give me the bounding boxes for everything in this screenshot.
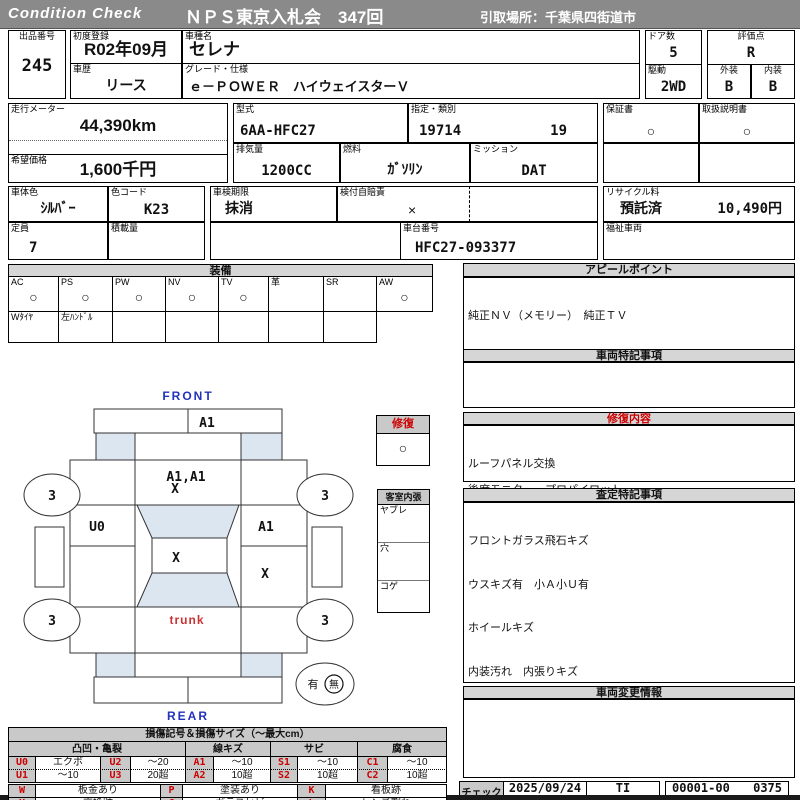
fuel-cell: 燃料 ｶﾞｿﾘﾝ: [340, 143, 470, 183]
assessment-body: フロントガラス飛石キズ ウスキズ有 小Ａ小Ｕ有 ホイールキズ 内装汚れ 内張りキ…: [463, 502, 795, 683]
price-value: 1,600千円: [9, 155, 227, 180]
inspection-cell: 車検期限 抹消: [210, 186, 337, 222]
legend-desc-s2: 10超: [297, 769, 358, 783]
appeal-line: 純正ＮＶ（メモリー） 純正ＴＶ: [468, 309, 790, 324]
history-label: 車歴: [73, 64, 91, 75]
exterior-grade-value: B: [708, 79, 750, 95]
color-code-value: K23: [109, 202, 204, 218]
fuel-value: ｶﾞｿﾘﾝ: [341, 159, 469, 179]
cabin-trim-box: 客室内張 ヤブレ 穴 コゲ: [377, 489, 430, 613]
equip-extra-5-cell: [218, 311, 269, 343]
chassis-cell: 車台番号 HFC27-093377: [400, 222, 598, 260]
equip-ps-cell: PS○: [58, 276, 113, 312]
roof-replace-mark: X: [172, 551, 180, 566]
insurance-label: 検付自賠責: [340, 187, 385, 198]
brand-logo: Condition Check: [8, 5, 142, 22]
cabin-trim-row-tear: ヤブレ: [378, 504, 429, 543]
equip-aw-cell: AW○: [376, 276, 433, 312]
manual-cell: 取扱説明書 ○: [699, 103, 795, 143]
cabin-trim-header: 客室内張: [378, 490, 429, 505]
model-code-label: 型式: [236, 104, 254, 115]
equip-extra-2-cell: 左ﾊﾝﾄﾞﾙ: [58, 311, 113, 343]
assessment-line: フロントガラス飛石キズ: [468, 534, 790, 549]
recycle-amount-value: 10,490円: [717, 198, 782, 218]
legend-group-corrosion: 腐食: [357, 741, 447, 757]
legend-desc-u0: エクボ: [35, 756, 101, 770]
lot-number-cell: 出品番号 245: [8, 30, 66, 99]
equip-extra-7-cell: [323, 311, 377, 343]
equip-ac-mark: ○: [9, 289, 58, 305]
front-direction-label: FRONT: [162, 389, 213, 403]
repair-flag-header: 修復: [377, 416, 429, 434]
chassis-label: 車台番号: [403, 223, 439, 234]
color-code-cell: 色コード K23: [108, 186, 205, 222]
equip-ps-mark: ○: [59, 289, 112, 305]
equip-sr-label: SR: [326, 277, 339, 288]
rear-center-panel: [135, 653, 241, 677]
assessment-header: 査定特記事項: [463, 488, 795, 502]
doors-value: 5: [646, 45, 701, 61]
legend-desc-a1: 〜10: [213, 756, 271, 770]
type-number-value: 19714: [419, 123, 461, 139]
type-class-cell: 指定・類別 19714 19: [408, 103, 598, 143]
color-code-label: 色コード: [111, 187, 147, 198]
cabin-trim-row-hole: 穴: [378, 542, 429, 581]
windshield-glass: [137, 505, 239, 538]
hood-replace-mark: X: [171, 482, 179, 497]
equip-extra-1-cell: Wﾀｲﾔ: [8, 311, 59, 343]
trunk-label: trunk: [170, 613, 205, 627]
type-class-label: 指定・類別: [411, 104, 456, 115]
transmission-label: ミッション: [473, 144, 518, 155]
legend-code-k: K: [297, 784, 326, 798]
interior-grade-cell: 内装 B: [751, 64, 795, 99]
warranty-empty-cell: [603, 143, 699, 183]
drive-label: 駆動: [648, 65, 666, 76]
equip-extra-2-label: 左ﾊﾝﾄﾞﾙ: [61, 312, 93, 323]
fuel-label: 燃料: [343, 144, 361, 155]
hood-front-panel: [135, 433, 241, 460]
legend-desc-s1: 〜10: [297, 756, 358, 770]
legend-desc-c2: 10超: [387, 769, 447, 783]
exterior-grade-cell: 外装 B: [707, 64, 751, 99]
displacement-label: 排気量: [236, 144, 263, 155]
assessment-line: ウスキズ有 小Ａ小Ｕ有: [468, 578, 790, 593]
legend-desc-a2: 10超: [213, 769, 271, 783]
legend-desc-c1: 〜10: [387, 756, 447, 770]
warranty-label: 保証書: [606, 104, 633, 115]
equip-tv-label: TV: [221, 277, 233, 288]
equip-aw-label: AW: [379, 277, 393, 288]
manual-empty-cell: [699, 143, 795, 183]
legend-group-dent: 凸凹・亀裂: [8, 741, 186, 757]
equip-ps-label: PS: [61, 277, 73, 288]
odometer-cell: 走行メーター 44,390km 希望価格 1,600千円: [8, 103, 228, 183]
history-cell: 車歴 リース: [70, 63, 182, 99]
legend-code-u1: U1: [8, 769, 36, 783]
rear-left-corner-glass: [96, 653, 135, 677]
equip-extra-4-cell: [165, 311, 219, 343]
legend-code-u2: U2: [100, 756, 131, 770]
welfare-cell: 福祉車両: [603, 222, 795, 260]
auction-condition-sheet: Condition Check ＮＰＳ東京入札会 347回 引取場所：千葉県四街…: [0, 0, 800, 800]
header-bar: Condition Check ＮＰＳ東京入札会 347回 引取場所：千葉県四街…: [0, 0, 800, 29]
repair-flag-mark: ○: [377, 440, 429, 456]
insurance-empty-cell: [470, 186, 598, 222]
legend-code-u3: U3: [100, 769, 131, 783]
equip-pw-cell: PW○: [112, 276, 166, 312]
legend-desc-u1: 〜10: [35, 769, 101, 783]
price-subcell: 希望価格 1,600千円: [9, 154, 227, 182]
inspection-value: 抹消: [211, 198, 336, 218]
rear-right-corner-glass: [241, 653, 282, 677]
legend-code-p: P: [160, 784, 183, 798]
legend-group-rust: サビ: [270, 741, 358, 757]
grade-cell: グレード・仕様 ｅ－ＰＯＷＥＲ ハイウェイスターＶ: [182, 63, 640, 99]
chassis-empty-cell: [210, 222, 401, 260]
equip-extra-3-cell: [112, 311, 166, 343]
recycle-fee-cell: リサイクル料 預託済 10,490円: [603, 186, 795, 222]
score-value: R: [708, 45, 794, 61]
equip-ac-cell: AC○: [8, 276, 59, 312]
legend-desc-u3: 20超: [130, 769, 186, 783]
front-left-corner-glass: [96, 433, 135, 460]
vehicle-notes-body: [463, 362, 795, 408]
front-bumper-damage-mark: A1: [199, 416, 215, 431]
repair-info-line: ルーフパネル交換: [468, 457, 790, 472]
inspection-label: 車検期限: [213, 187, 249, 198]
interior-grade-label: 内装: [752, 65, 794, 76]
legend-group-scratch: 線キズ: [185, 741, 271, 757]
equip-leather-cell: 革: [268, 276, 324, 312]
warranty-mark: ○: [604, 123, 698, 139]
insurance-cell: 検付自賠責 ×: [337, 186, 470, 222]
load-cell: 積載量: [108, 222, 205, 260]
front-right-tire-depth: 3: [321, 489, 329, 504]
appeal-body: 純正ＮＶ（メモリー） 純正ＴＶ インテリジェントキー（2） 左右オートスライドド…: [463, 277, 795, 352]
rear-left-tire-depth: 3: [48, 614, 56, 629]
equip-pw-mark: ○: [113, 289, 165, 305]
equip-nv-cell: NV○: [165, 276, 219, 312]
change-info-body: [463, 699, 795, 778]
pickup-location: 引取場所：千葉県四街道市: [480, 7, 636, 26]
roof-panel: [152, 538, 227, 573]
odometer-divider: [9, 140, 227, 141]
legend-code-s1: S1: [270, 756, 298, 770]
displacement-value: 1200CC: [234, 163, 339, 179]
chassis-value: HFC27-093377: [401, 240, 597, 256]
body-color-cell: 車体色 ｼﾙﾊﾞｰ: [8, 186, 108, 222]
displacement-cell: 排気量 1200CC: [233, 143, 340, 183]
assessment-line: 内装汚れ 内張りキズ: [468, 665, 790, 680]
welfare-label: 福祉車両: [606, 223, 642, 234]
left-mirror-panel: [35, 527, 64, 587]
score-cell: 評価点 R: [707, 30, 795, 65]
legend-code-a2: A2: [185, 769, 214, 783]
first-registration-value: R02年09月: [71, 35, 181, 60]
drive-value: 2WD: [646, 79, 701, 95]
left-door-damage-mark: U0: [89, 520, 105, 535]
manual-mark: ○: [700, 123, 794, 139]
equip-tv-cell: TV○: [218, 276, 269, 312]
body-color-value: ｼﾙﾊﾞｰ: [9, 198, 107, 218]
spare-none-label: 無: [329, 678, 339, 691]
right-mirror-panel: [312, 527, 342, 587]
repair-info-body: ルーフパネル交換: [463, 425, 795, 482]
grade-value: ｅ－ＰＯＷＥＲ ハイウェイスターＶ: [183, 76, 639, 95]
legend-desc-k: 看板跡: [325, 784, 447, 798]
right-rear-replace-mark: X: [261, 567, 269, 582]
model-name-value: セレナ: [183, 35, 639, 60]
legend-desc-w: 板金あり: [35, 784, 161, 798]
doors-cell: ドア数 5: [645, 30, 702, 65]
exterior-grade-label: 外装: [708, 65, 750, 76]
equip-nv-mark: ○: [166, 289, 218, 305]
equip-leather-label: 革: [271, 277, 280, 288]
capacity-cell: 定員 7: [8, 222, 108, 260]
repair-flag-box: 修復 ○: [376, 415, 430, 466]
body-color-label: 車体色: [11, 187, 38, 198]
recycle-fee-label: リサイクル料: [606, 187, 660, 198]
transmission-cell: ミッション DAT: [470, 143, 598, 183]
front-right-corner-glass: [241, 433, 282, 460]
equip-sr-cell: SR: [323, 276, 377, 312]
class-number-value: 19: [550, 123, 567, 139]
equip-tv-mark: ○: [219, 289, 268, 305]
legend-title: 損傷記号＆損傷サイズ（〜最大cm）: [8, 727, 447, 742]
spare-present-label: 有: [308, 677, 319, 691]
odometer-label: 走行メーター: [11, 104, 65, 115]
rear-window-glass: [137, 573, 239, 607]
model-code-value: 6AA-HFC27: [234, 123, 407, 139]
vehicle-notes-header: 車両特記事項: [463, 349, 795, 362]
page-no-value: 0375: [753, 781, 782, 795]
inspector-value: TI: [587, 781, 659, 795]
lot-number-label: 出品番号: [9, 31, 65, 42]
cabin-trim-burn-label: コゲ: [380, 581, 398, 592]
legend-code-u0: U0: [8, 756, 36, 770]
repair-info-header: 修復内容: [463, 412, 795, 425]
model-name-cell: 車種名 セレナ: [182, 30, 640, 64]
equip-pw-label: PW: [115, 277, 130, 288]
auction-title: ＮＰＳ東京入札会 347回: [185, 3, 383, 28]
front-left-tire-depth: 3: [48, 489, 56, 504]
assessment-line: ホイールキズ: [468, 621, 790, 636]
right-door-damage-mark: A1: [258, 520, 274, 535]
legend-code-a1: A1: [185, 756, 214, 770]
odometer-value: 44,390km: [9, 116, 227, 136]
legend-desc-u2: 〜20: [130, 756, 186, 770]
legend-code-w: W: [8, 784, 36, 798]
grade-label: グレード・仕様: [185, 64, 248, 75]
rear-right-tire-depth: 3: [321, 614, 329, 629]
capacity-value: 7: [9, 240, 107, 256]
history-value: リース: [71, 75, 181, 95]
score-label: 評価点: [708, 31, 794, 42]
equip-aw-mark: ○: [377, 289, 432, 305]
legend-code-c2: C2: [357, 769, 388, 783]
interior-grade-value: B: [752, 79, 794, 95]
cabin-trim-tear-label: ヤブレ: [380, 505, 407, 516]
appeal-header: アピールポイント: [463, 263, 795, 277]
equip-extra-1-label: Wﾀｲﾔ: [11, 312, 33, 323]
manual-label: 取扱説明書: [702, 104, 747, 115]
rear-direction-label: REAR: [167, 709, 209, 723]
doors-label: ドア数: [648, 31, 675, 42]
change-info-header: 車両変更情報: [463, 686, 795, 699]
legend-code-s2: S2: [270, 769, 298, 783]
equip-extra-6-cell: [268, 311, 324, 343]
drive-cell: 駆動 2WD: [645, 64, 702, 99]
lot-number-value: 245: [9, 56, 65, 76]
model-code-cell: 型式 6AA-HFC27: [233, 103, 408, 143]
check-date-value: 2025/09/24: [504, 781, 586, 795]
insurance-mark: ×: [338, 202, 469, 218]
capacity-label: 定員: [11, 223, 29, 234]
equip-ac-label: AC: [11, 277, 24, 288]
transmission-value: DAT: [471, 163, 597, 179]
legend-desc-p: 塗装あり: [182, 784, 298, 798]
equip-nv-label: NV: [168, 277, 181, 288]
first-registration-cell: 初度登録 R02年09月: [70, 30, 182, 64]
load-label: 積載量: [111, 223, 138, 234]
cabin-trim-hole-label: 穴: [380, 543, 389, 554]
cabin-trim-row-burn: コゲ: [378, 580, 429, 613]
legend-code-c1: C1: [357, 756, 388, 770]
warranty-cell: 保証書 ○: [603, 103, 699, 143]
